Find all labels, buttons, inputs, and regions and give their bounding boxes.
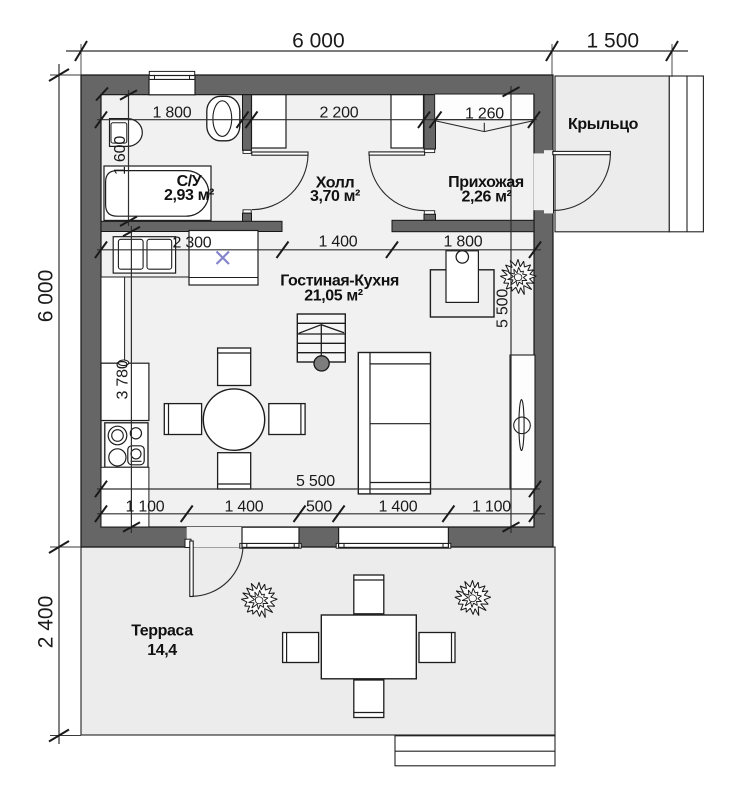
svg-text:3,70 м²: 3,70 м² <box>310 188 360 205</box>
svg-text:2,26 м²: 2,26 м² <box>462 189 512 206</box>
svg-text:2 400: 2 400 <box>35 596 58 649</box>
svg-text:1 800: 1 800 <box>443 234 482 251</box>
svg-text:500: 500 <box>306 498 332 515</box>
svg-text:1 260: 1 260 <box>465 106 504 123</box>
svg-text:2 200: 2 200 <box>319 105 358 122</box>
svg-text:6 000: 6 000 <box>292 30 345 53</box>
svg-text:5 500: 5 500 <box>296 473 335 490</box>
svg-text:Терраса: Терраса <box>131 623 193 640</box>
svg-text:21,05 м²: 21,05 м² <box>304 288 363 305</box>
svg-text:3 780: 3 780 <box>115 360 132 399</box>
svg-text:1 400: 1 400 <box>318 234 357 251</box>
svg-text:1 100: 1 100 <box>125 498 164 515</box>
svg-text:2 300: 2 300 <box>172 234 211 251</box>
svg-text:14,4: 14,4 <box>147 642 177 659</box>
svg-text:6 000: 6 000 <box>35 270 58 323</box>
svg-text:1 500: 1 500 <box>587 30 640 53</box>
svg-text:1 800: 1 800 <box>152 105 191 122</box>
svg-text:5 500: 5 500 <box>495 289 512 328</box>
svg-text:Крыльцо: Крыльцо <box>568 116 639 133</box>
svg-text:1 100: 1 100 <box>472 498 511 515</box>
svg-text:2,93 м²: 2,93 м² <box>164 187 214 204</box>
svg-text:1 400: 1 400 <box>224 498 263 515</box>
svg-text:1 400: 1 400 <box>378 498 417 515</box>
svg-text:1 600: 1 600 <box>112 136 129 175</box>
